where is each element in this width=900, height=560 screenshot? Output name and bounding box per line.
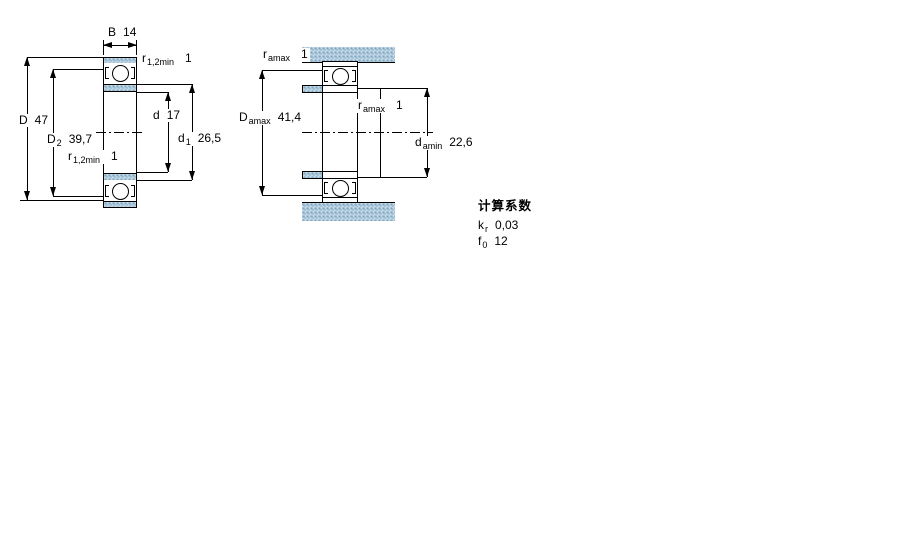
label-damin-value: 22,6 [449, 136, 472, 149]
arrow-d1-bottom [189, 171, 195, 180]
right-ball-top [332, 68, 349, 85]
bearing-drawing-canvas: B 14 D 47 D 2 39,7 d 17 d 1 26,5 r 1,2 [0, 0, 900, 560]
factor-f0-symbol: f [478, 234, 481, 248]
label-r12min-top-symbol: r [142, 52, 146, 65]
ext-line-d-bottom [137, 172, 168, 173]
label-r12min-bottom-value: 1 [111, 150, 118, 163]
calculation-factors-title: 计算系数 [478, 195, 532, 214]
label-damin-subscript: amin [423, 140, 443, 153]
factor-kr-subscript: r [485, 224, 488, 234]
factor-f0-value: 12 [494, 234, 507, 248]
arrow-D2-top [50, 69, 56, 78]
shield-left-top [105, 67, 109, 79]
arrow-damin-top [424, 88, 430, 97]
ball-top [112, 65, 129, 82]
shield-left-bottom [105, 185, 109, 197]
label-D-symbol: D [19, 114, 28, 127]
factor-f0: f 0 12 [478, 234, 508, 248]
right-ball-bottom [332, 180, 349, 197]
right-shield-right-bottom [352, 182, 356, 194]
shield-right-top [131, 67, 135, 79]
label-d-value: 17 [167, 109, 180, 122]
left-centerline [96, 132, 144, 133]
label-d1-value: 26,5 [198, 132, 221, 145]
label-r12min-bottom: r 1,2min 1 [66, 150, 120, 164]
arrow-D2-bottom [50, 187, 56, 196]
ball-bottom [112, 183, 129, 200]
arrow-d1-top [189, 84, 195, 93]
dim-line-Damax [262, 70, 263, 195]
label-ramax-mid-subscript: amax [363, 103, 385, 116]
arrow-d-top [165, 92, 171, 101]
label-D-value: 47 [35, 114, 48, 127]
dim-line-D [27, 57, 28, 200]
label-d1-symbol: d [178, 132, 185, 145]
label-ramax-mid-symbol: r [358, 99, 362, 112]
label-d1: d 1 26,5 [176, 132, 223, 146]
label-D: D 47 [17, 114, 50, 127]
arrow-damin-bottom [424, 168, 430, 177]
right-inner-ring-top [322, 85, 358, 93]
label-ramax-top: r amax 1 [261, 48, 310, 62]
label-damin: d amin 22,6 [413, 136, 475, 150]
ext-line-D-top [27, 57, 103, 58]
label-D2: D 2 39,7 [45, 133, 94, 147]
right-shield-left-top [324, 70, 328, 82]
ext-line-Damax-top [262, 70, 322, 71]
label-ramax-top-value: 1 [301, 48, 308, 61]
right-inner-ring-bottom [322, 171, 358, 179]
label-r12min-top-subscript: 1,2min [147, 56, 174, 69]
label-D2-symbol: D [47, 133, 56, 146]
housing-block-bottom [302, 202, 395, 221]
label-r12min-top-value: 1 [185, 52, 192, 65]
label-Damax-subscript: amax [249, 115, 271, 128]
label-d: d 17 [151, 109, 182, 122]
label-damin-symbol: d [415, 136, 422, 149]
label-ramax-top-symbol: r [263, 48, 267, 61]
shaft-shoulder-bottom [302, 171, 323, 179]
arrow-D-bottom [24, 191, 30, 200]
ext-line-Damax-bottom [262, 195, 322, 196]
arrow-B-right [128, 42, 137, 48]
ext-line-d-top [137, 92, 168, 93]
label-ramax-top-subscript: amax [268, 52, 290, 65]
right-outer-ring-bottom [322, 197, 358, 203]
label-B-symbol: B [108, 26, 116, 39]
ext-line-d1-bottom [137, 180, 192, 181]
label-Damax-value: 41,4 [278, 111, 301, 124]
left-inner-ring-top [103, 84, 137, 92]
label-B: B 14 [106, 26, 138, 39]
left-outer-ring-bottom [103, 201, 137, 208]
label-D2-value: 39,7 [69, 133, 92, 146]
ext-line-D2-bottom [53, 196, 103, 197]
label-ramax-mid-value: 1 [396, 99, 403, 112]
label-D2-subscript: 2 [57, 137, 62, 150]
label-r12min-bottom-subscript: 1,2min [73, 154, 100, 167]
ext-line-D-bottom [20, 200, 103, 201]
arrow-Damax-top [259, 70, 265, 79]
factor-kr-value: 0,03 [495, 218, 518, 232]
right-shield-left-bottom [324, 182, 328, 194]
arrow-D-top [24, 57, 30, 66]
label-d-symbol: d [153, 109, 160, 122]
ext-line-damin-top [358, 88, 427, 89]
dim-line-damin [427, 88, 428, 177]
label-r12min-bottom-symbol: r [68, 150, 72, 163]
shaft-shoulder-top [302, 85, 323, 93]
label-d1-subscript: 1 [186, 136, 191, 149]
label-r12min-top: r 1,2min 1 [140, 52, 194, 66]
factor-kr-symbol: k [478, 218, 484, 232]
right-shield-right-top [352, 70, 356, 82]
dim-line-d [168, 92, 169, 172]
label-B-value: 14 [123, 26, 136, 39]
label-Damax-symbol: D [239, 111, 248, 124]
arrow-B-left [103, 42, 112, 48]
arrow-d-bottom [165, 163, 171, 172]
ext-line-damin-bottom [358, 177, 427, 178]
label-Damax: D amax 41,4 [237, 111, 303, 125]
arrow-Damax-bottom [259, 186, 265, 195]
ext-line-D2-top [53, 69, 103, 70]
right-centerline [302, 132, 433, 133]
shield-right-bottom [131, 185, 135, 197]
ext-line-d1-top [137, 84, 192, 85]
factor-kr: k r 0,03 [478, 218, 518, 232]
factor-f0-subscript: 0 [482, 240, 487, 250]
label-ramax-mid: r amax 1 [356, 99, 405, 113]
